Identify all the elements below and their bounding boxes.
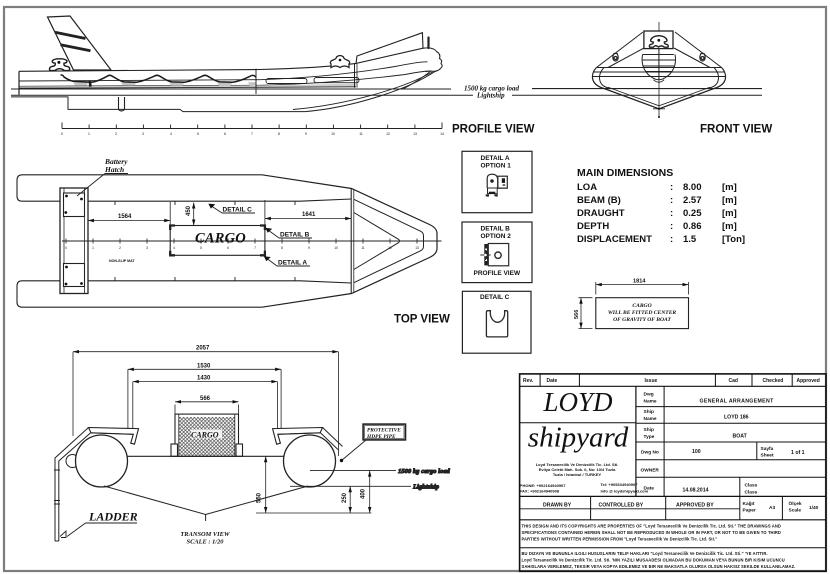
svg-text:Dwg: Dwg <box>644 392 654 398</box>
svg-text:1814: 1814 <box>633 279 646 285</box>
svg-text:1.5: 1.5 <box>683 234 697 245</box>
svg-text:14: 14 <box>440 132 444 136</box>
svg-text:OWNER: OWNER <box>641 468 660 474</box>
svg-text:OPTION 2: OPTION 2 <box>481 233 512 240</box>
svg-text:14.08.2014: 14.08.2014 <box>683 488 709 494</box>
svg-text:DETAIL B: DETAIL B <box>280 232 310 239</box>
svg-text:7: 7 <box>251 132 253 136</box>
svg-text:SPECIFICATIONS CONTAINED HEREI: SPECIFICATIONS CONTAINED HEREIN SHALL NO… <box>522 530 781 535</box>
svg-text:566: 566 <box>574 310 580 319</box>
svg-text:13: 13 <box>415 246 419 250</box>
svg-text:LOA: LOA <box>577 182 597 193</box>
svg-text:BU DIZAYN VE BUNUNLA ILGILI HU: BU DIZAYN VE BUNUNLA ILGILI HUSUSLARIN T… <box>522 551 768 556</box>
svg-text:LOYD 186: LOYD 186 <box>724 415 749 421</box>
svg-text:1: 1 <box>92 246 94 250</box>
svg-text:Loyd Tersanecilik Ve Denizcili: Loyd Tersanecilik Ve Denizcilik Tic. Ltd… <box>522 558 785 563</box>
svg-text:DETAIL C: DETAIL C <box>223 207 253 214</box>
svg-text:DRAWN BY: DRAWN BY <box>543 503 572 509</box>
svg-text:0.25: 0.25 <box>683 208 702 219</box>
svg-text:1 of 1: 1 of 1 <box>791 450 805 456</box>
svg-text:[m]: [m] <box>722 208 737 219</box>
svg-text:Ship: Ship <box>644 427 654 433</box>
svg-text:13: 13 <box>413 132 417 136</box>
svg-text:6: 6 <box>224 132 226 136</box>
svg-text:Scale: Scale <box>789 508 802 514</box>
svg-text:Lightship: Lightship <box>412 484 440 491</box>
svg-text:1530: 1530 <box>197 363 211 369</box>
svg-text:Type: Type <box>644 434 655 440</box>
svg-text:3: 3 <box>142 132 144 136</box>
svg-text:Name: Name <box>644 399 657 405</box>
svg-text:SAHISLARA VERILEMEZ, TEKSIR VE: SAHISLARA VERILEMEZ, TEKSIR VEYA KOPYA E… <box>522 564 796 569</box>
svg-text::: : <box>670 208 673 219</box>
svg-text:Rev.: Rev. <box>523 378 534 384</box>
svg-text:PROFILE VIEW: PROFILE VIEW <box>452 124 535 136</box>
svg-text:Lightship: Lightship <box>476 92 505 100</box>
svg-text:TRANSOM VIEW: TRANSOM VIEW <box>180 531 231 538</box>
svg-text:2: 2 <box>119 246 121 250</box>
svg-text:Checked: Checked <box>763 378 784 384</box>
svg-text:250: 250 <box>342 492 348 503</box>
svg-text:9: 9 <box>308 246 310 250</box>
svg-text:4: 4 <box>170 132 172 136</box>
svg-text:TOP VIEW: TOP VIEW <box>394 314 450 326</box>
svg-text:0: 0 <box>61 132 63 136</box>
svg-text:BOAT: BOAT <box>733 434 748 440</box>
svg-text:0.86: 0.86 <box>683 221 702 232</box>
svg-text:1641: 1641 <box>302 212 316 218</box>
svg-text:info @ loydshipyard.com: info @ loydshipyard.com <box>601 489 649 494</box>
svg-text:0: 0 <box>65 246 67 250</box>
svg-text:9: 9 <box>305 132 307 136</box>
svg-text:PARTIES WITHOUT WRITTEN PER: PARTIES WITHOUT WRITTEN PERMISSION FROM … <box>522 536 718 541</box>
svg-text:HDPE PIPE: HDPE PIPE <box>366 434 396 440</box>
svg-text:11: 11 <box>359 132 363 136</box>
svg-text:5: 5 <box>200 246 202 250</box>
svg-text:PHONE: +902164940907: PHONE: +902164940907 <box>520 483 566 488</box>
svg-text:Dwg No: Dwg No <box>641 450 659 456</box>
svg-text:Date: Date <box>644 486 655 492</box>
svg-text::: : <box>670 221 673 232</box>
svg-text:7: 7 <box>254 246 256 250</box>
svg-text:MAIN DIMENSIONS: MAIN DIMENSIONS <box>577 167 673 179</box>
svg-text:Cad: Cad <box>729 378 738 384</box>
svg-text:THIS DESIGN AND ITS COPYRIGHTS: THIS DESIGN AND ITS COPYRIGHTS ARE PROPE… <box>522 523 781 528</box>
svg-text:SCALE : 1/20: SCALE : 1/20 <box>187 539 225 546</box>
svg-text:OF GRAVITY OF BOAT: OF GRAVITY OF BOAT <box>613 317 671 323</box>
svg-text:1564: 1564 <box>118 214 132 220</box>
svg-text:DEPTH: DEPTH <box>577 221 609 232</box>
svg-text:Tel: +905334940907: Tel: +905334940907 <box>601 482 639 487</box>
svg-text:Approved: Approved <box>797 378 820 384</box>
svg-text:CONTROLLED BY: CONTROLLED BY <box>599 503 644 509</box>
svg-text:450: 450 <box>186 205 192 216</box>
svg-text:[m]: [m] <box>722 182 737 193</box>
svg-text:Paper: Paper <box>743 508 756 514</box>
svg-text:3: 3 <box>146 246 148 250</box>
svg-text:Class: Class <box>745 483 758 489</box>
svg-text:8: 8 <box>278 132 280 136</box>
svg-text:DETAIL B: DETAIL B <box>481 226 511 233</box>
svg-text:FAX: +902164940908: FAX: +902164940908 <box>520 489 560 494</box>
svg-text:Ship: Ship <box>644 409 654 415</box>
svg-text:A3: A3 <box>769 505 775 511</box>
svg-text:OPTION 1: OPTION 1 <box>481 163 512 170</box>
svg-text:Class: Class <box>745 490 758 496</box>
svg-text::: : <box>670 182 673 193</box>
svg-text:CARGO: CARGO <box>632 303 651 309</box>
svg-text:DETAIL A: DETAIL A <box>481 155 510 162</box>
svg-text:10: 10 <box>334 246 338 250</box>
svg-text:10: 10 <box>331 132 335 136</box>
svg-text:5: 5 <box>197 132 199 136</box>
svg-text:Hatch: Hatch <box>104 165 124 174</box>
svg-text:LADDER: LADDER <box>88 510 138 524</box>
svg-text:WILL BE FITTED CENTER: WILL BE FITTED CENTER <box>608 310 677 316</box>
svg-text:[m]: [m] <box>722 221 737 232</box>
svg-text::: : <box>670 234 673 245</box>
svg-text:BEAM (B): BEAM (B) <box>577 195 621 206</box>
svg-text:Tuzla / Istanbul / TURKEY: Tuzla / Istanbul / TURKEY <box>553 472 602 477</box>
svg-text:DISPLACEMENT: DISPLACEMENT <box>577 234 652 245</box>
svg-text:shipyard: shipyard <box>528 422 629 454</box>
svg-text:Issue: Issue <box>645 378 658 384</box>
svg-text:550: 550 <box>257 492 263 503</box>
svg-text:LOYD: LOYD <box>542 387 613 417</box>
svg-text:4: 4 <box>173 246 175 250</box>
svg-text:CARGO: CARGO <box>195 231 246 247</box>
svg-text:CARGO: CARGO <box>191 431 219 440</box>
svg-text:DETAIL C: DETAIL C <box>480 294 510 301</box>
svg-text:6: 6 <box>227 246 229 250</box>
svg-text:8.00: 8.00 <box>683 182 702 193</box>
svg-text:Date: Date <box>547 378 558 384</box>
svg-text:400: 400 <box>361 488 367 499</box>
svg-text:566: 566 <box>200 396 211 402</box>
svg-text:1500 kg cargo load: 1500 kg cargo load <box>398 468 451 475</box>
svg-text:Kağıt: Kağıt <box>743 501 755 507</box>
svg-text:Sayfa: Sayfa <box>761 446 774 452</box>
svg-text:Name: Name <box>644 416 657 422</box>
svg-text:2.57: 2.57 <box>683 195 702 206</box>
svg-text:DETAIL A: DETAIL A <box>278 260 307 267</box>
svg-text:GENERAL ARRANGEMENT: GENERAL ARRANGEMENT <box>700 399 775 405</box>
svg-text:FRONT VIEW: FRONT VIEW <box>700 124 772 136</box>
svg-text::: : <box>670 195 673 206</box>
svg-text:NON-SLIP MAT: NON-SLIP MAT <box>109 259 135 263</box>
svg-text:APPROVED BY: APPROVED BY <box>676 503 714 509</box>
svg-text:8: 8 <box>281 246 283 250</box>
svg-text:Ölçek: Ölçek <box>789 500 802 507</box>
svg-text:2: 2 <box>115 132 117 136</box>
svg-text:DRAUGHT: DRAUGHT <box>577 208 625 219</box>
svg-text:1430: 1430 <box>197 376 211 382</box>
svg-text:12: 12 <box>386 132 390 136</box>
svg-text:11: 11 <box>361 246 365 250</box>
svg-text:2057: 2057 <box>196 346 210 352</box>
svg-text:100: 100 <box>692 449 701 455</box>
svg-text:PROFILE VIEW: PROFILE VIEW <box>474 270 521 277</box>
svg-text:PROTECTIVE: PROTECTIVE <box>367 428 401 434</box>
svg-text:1: 1 <box>88 132 90 136</box>
svg-text:[m]: [m] <box>722 195 737 206</box>
svg-text:12: 12 <box>388 246 392 250</box>
svg-text:Sheet: Sheet <box>761 453 774 459</box>
svg-text:[Ton]: [Ton] <box>722 234 745 245</box>
svg-text:1/40: 1/40 <box>809 505 819 511</box>
